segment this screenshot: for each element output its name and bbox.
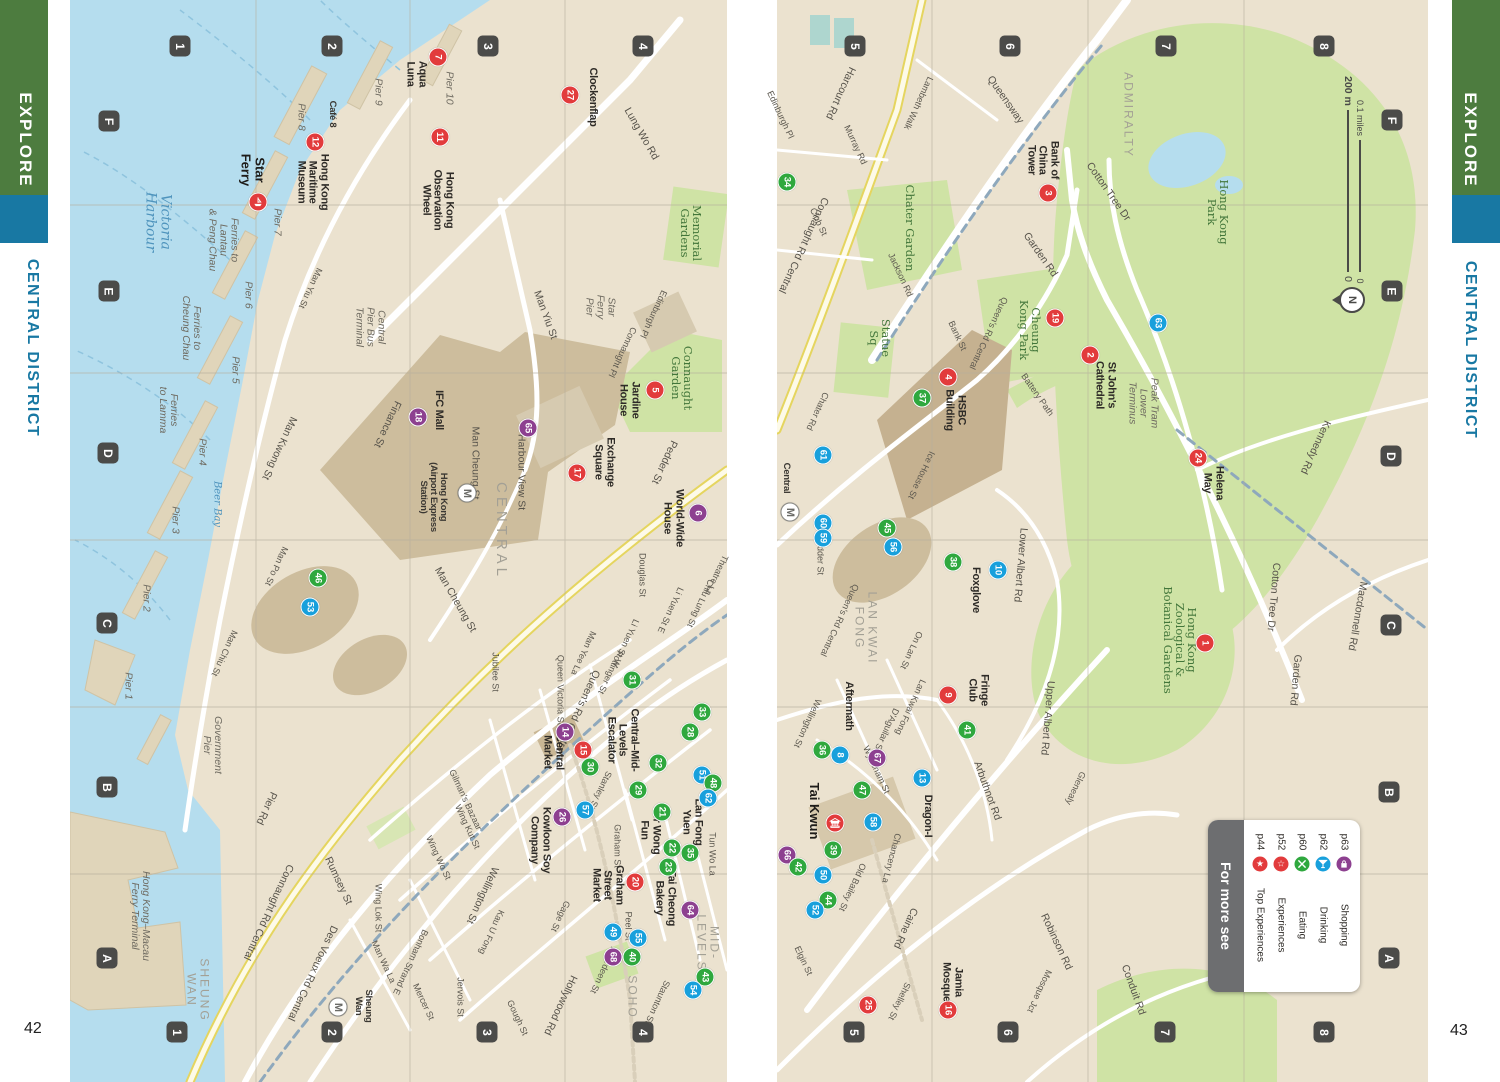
map-label: Ferries to Lantau & Peng Chau xyxy=(206,209,239,271)
scalebar-zero-metric: 0 xyxy=(1342,276,1354,282)
marker-number: 37 xyxy=(916,393,927,404)
grid-ref-label: F xyxy=(1385,116,1399,123)
poi-marker-33: 33 xyxy=(693,703,712,722)
grid-ref-label: 3 xyxy=(481,43,495,50)
marker-number: 7 xyxy=(432,54,443,59)
marker-number: 49 xyxy=(607,927,618,938)
map-label: Wing Lok St xyxy=(373,884,382,933)
map-label: Arbuthnot Rd xyxy=(971,760,1003,822)
map-label: Man Kwong St xyxy=(260,415,299,482)
map-label: Central Pier Bus Terminal xyxy=(353,307,386,347)
marker-number: 56 xyxy=(887,542,898,553)
map-label: MID- LEVELS xyxy=(695,914,720,971)
map-label: Central–Mid- Levels Escalator xyxy=(605,708,640,771)
legend-item-eating: p60Eating xyxy=(1292,820,1312,992)
map-label: Harcourt Rd xyxy=(823,65,857,121)
poi-marker-46: 46 xyxy=(309,569,328,588)
map-label: Queen's Rd Central xyxy=(818,582,860,657)
map-label: Sheung Wan xyxy=(353,989,373,1022)
map-label: Memorial Gardens xyxy=(679,205,703,261)
marker-number: 1 xyxy=(1199,640,1210,645)
marker-number: 65 xyxy=(522,423,533,434)
map-label: Pottinger St xyxy=(596,649,624,696)
marker-number: 11 xyxy=(434,132,445,142)
star-filled-icon: ★ xyxy=(1253,857,1268,872)
map-label: Bank St xyxy=(946,320,968,353)
marker-number: 33 xyxy=(696,707,707,718)
scalebar-imperial xyxy=(1359,140,1361,272)
map-label: Jubilee St xyxy=(490,652,499,692)
poi-marker-30: 30 xyxy=(581,758,600,777)
grid-ref-B: B xyxy=(1379,782,1400,803)
grid-ref-label: 2 xyxy=(325,1029,339,1036)
poi-marker-37: 37 xyxy=(913,389,932,408)
grid-ref-2: 2 xyxy=(322,36,343,57)
north-compass: N xyxy=(1339,287,1365,313)
legend-label: Shopping xyxy=(1339,904,1350,946)
poi-marker-21: 21 xyxy=(653,803,672,822)
marker-number: 39 xyxy=(827,845,838,856)
grid-ref-C: C xyxy=(97,613,118,634)
poi-marker-52: 52 xyxy=(806,901,825,920)
grid-ref-label: 5 xyxy=(848,43,862,50)
marker-number: 5 xyxy=(649,387,660,392)
map-label: Old Bailey St xyxy=(837,861,868,912)
grid-ref-A: A xyxy=(97,948,118,969)
map-label: Hong Kong Observation Wheel xyxy=(420,170,455,231)
north-arrow-icon xyxy=(1332,295,1340,305)
marker-number: M xyxy=(332,1002,344,1011)
poi-marker-24: 24 xyxy=(1189,449,1208,468)
map-label: Lung Wo Rd xyxy=(622,106,661,162)
marker-number: 43 xyxy=(699,972,710,983)
map-label: Gilman's Bazaar xyxy=(447,768,483,832)
map-label: Douglas St xyxy=(637,553,646,597)
museum-marker xyxy=(826,814,845,833)
map-label: Aftermath xyxy=(842,681,854,730)
map-label: Conduit Rd xyxy=(1119,963,1147,1016)
marker-number: 9 xyxy=(942,692,953,697)
marker-number: 53 xyxy=(304,602,315,613)
legend-title: For more see xyxy=(1218,862,1234,950)
map-label: Mercer St xyxy=(410,982,435,1021)
marker-number: 62 xyxy=(702,793,713,804)
map-label: Tun Wo La xyxy=(707,832,716,876)
marker-number: 25 xyxy=(862,1000,873,1011)
grid-ref-1: 1 xyxy=(167,1022,188,1043)
map-label: Shelley St xyxy=(886,981,912,1022)
poi-marker-39: 39 xyxy=(824,841,843,860)
map-label: Hong Kong Park xyxy=(1206,179,1230,244)
map-label: Ferries to Cheung Chau xyxy=(180,296,202,361)
map-label: Beer Bay xyxy=(211,481,222,527)
map-label: Jervois St xyxy=(455,977,464,1017)
legend-items: p44★Top Experiencesp52☆Experiencesp60Eat… xyxy=(1244,820,1360,992)
poi-marker-32: 32 xyxy=(649,754,668,773)
legend-label: Top Experiences xyxy=(1255,888,1266,962)
grid-ref-E: E xyxy=(1382,281,1403,302)
marker-number: 64 xyxy=(684,905,695,916)
poi-marker-9: 9 xyxy=(939,686,958,705)
grid-ref-A: A xyxy=(1379,948,1400,969)
marker-number: 14 xyxy=(559,727,570,738)
grid-ref-label: 6 xyxy=(1001,1029,1015,1036)
map-label: Battery Path xyxy=(1019,372,1055,418)
map-label: Government Pier xyxy=(201,716,223,774)
marker-number: 28 xyxy=(684,727,695,738)
map-label: D'Aguilar St xyxy=(872,707,901,754)
map-label: Cotton Tree Dr xyxy=(1265,562,1282,632)
grid-ref-5: 5 xyxy=(845,36,866,57)
poi-marker-53: 53 xyxy=(301,598,320,617)
map-label: Bank of China Tower xyxy=(1025,141,1060,179)
map-label: Macdonnell Rd xyxy=(1345,581,1368,652)
poi-marker-13: 13 xyxy=(913,769,932,788)
map-label: Kau U Fong xyxy=(477,908,506,956)
map-label: Connaught Pl xyxy=(606,325,638,378)
grid-ref-label: D xyxy=(101,449,115,458)
marker-number: 27 xyxy=(564,90,575,101)
map-label: Pier 7 xyxy=(271,208,282,235)
map-label: Chater Garden xyxy=(904,185,916,272)
marker-number: 55 xyxy=(632,933,643,944)
map-label: Li Yuen St E xyxy=(655,586,684,635)
map-label: Queen's Rd Central xyxy=(967,295,1009,370)
grid-ref-label: 3 xyxy=(480,1029,494,1036)
map-label: Murray Rd xyxy=(842,124,868,166)
marker-number: 42 xyxy=(792,862,803,873)
map-label: Chancery La xyxy=(880,832,902,884)
poi-marker-38: 38 xyxy=(944,553,963,572)
map-label: On Lan St xyxy=(898,630,924,671)
marker-number: 23 xyxy=(662,862,673,873)
poi-marker-47: 47 xyxy=(853,781,872,800)
marker-number: 40 xyxy=(626,952,637,963)
grid-ref-label: B xyxy=(100,783,114,792)
marker-number: 22 xyxy=(666,843,677,854)
map-label: Victoria Harbour xyxy=(143,192,172,252)
marker-number: 2 xyxy=(1084,352,1095,357)
map-label: Dragon-I xyxy=(921,795,933,838)
map-label: Rumsey St xyxy=(322,855,354,906)
marker-number: 17 xyxy=(571,468,582,479)
grid-ref-label: 1 xyxy=(173,43,187,50)
poi-marker-26: 26 xyxy=(553,808,572,827)
poi-marker-36: 36 xyxy=(813,741,832,760)
map-label: Star Ferry Pier xyxy=(583,295,616,320)
grid-ref-label: C xyxy=(100,619,114,628)
poi-marker-56: 56 xyxy=(884,538,903,557)
grid-ref-label: 2 xyxy=(325,43,339,50)
ferry-marker xyxy=(249,193,268,212)
poi-marker-65: 65 xyxy=(519,419,538,438)
poi-marker-14: 14 xyxy=(556,723,575,742)
map-label: Lan Kwai Fong xyxy=(893,678,927,736)
star-outline-icon: ☆ xyxy=(1274,857,1289,872)
map-label: Hong Kong–Macau Ferry Terminal xyxy=(129,871,151,961)
map-label: Wellington St xyxy=(464,865,500,926)
grid-ref-E: E xyxy=(99,281,120,302)
map-label: Connaught Garden xyxy=(670,346,694,410)
marker-number: 36 xyxy=(816,745,827,756)
map-label: Cotton Tree Dr xyxy=(1084,161,1133,224)
map-label: Pier 3 xyxy=(169,506,180,533)
map-label: Queensway xyxy=(985,74,1026,126)
marker-number: 38 xyxy=(947,557,958,568)
map-label: Man Chiu St xyxy=(209,629,238,678)
marker-number: 46 xyxy=(312,573,323,584)
legend-item-experiences: p52☆Experiences xyxy=(1271,820,1291,992)
grid-ref-7: 7 xyxy=(1155,1022,1176,1043)
marker-number: 30 xyxy=(584,762,595,773)
grid-ref-8: 8 xyxy=(1314,36,1335,57)
map-label: Man Yiu St xyxy=(531,289,559,340)
map-label: Bonham Strand E xyxy=(391,928,430,996)
scalebar-zero-imperial: 0 xyxy=(1355,278,1365,283)
map-label: Pier 4 xyxy=(196,438,207,465)
map-label: Jamia Mosque xyxy=(940,962,963,1002)
legend-label: Drinking xyxy=(1318,907,1329,944)
mtr-marker: M xyxy=(329,998,348,1017)
grid-ref-B: B xyxy=(97,777,118,798)
legend-page-ref: p62 xyxy=(1318,834,1329,851)
marker-number: 32 xyxy=(652,758,663,769)
poi-marker-28: 28 xyxy=(681,723,700,742)
map-label: Connaught Rd Central xyxy=(241,862,295,961)
poi-marker-22: 22 xyxy=(663,839,682,858)
marker-number: 6 xyxy=(692,510,703,515)
map-label: Club St xyxy=(807,207,828,238)
grid-ref-label: 4 xyxy=(636,1029,650,1036)
map-label: Li Yuen St W xyxy=(610,617,640,668)
grid-ref-6: 6 xyxy=(998,1022,1019,1043)
grid-ref-3: 3 xyxy=(478,36,499,57)
poi-marker-58: 58 xyxy=(864,813,883,832)
marker-number: 26 xyxy=(556,812,567,823)
legend-header: For more see xyxy=(1208,820,1244,992)
marker-number: 19 xyxy=(1049,313,1060,324)
grid-ref-label: B xyxy=(1382,788,1396,797)
map-label: Jackson Rd xyxy=(886,252,914,299)
poi-marker-17: 17 xyxy=(568,464,587,483)
map-label: Jardine House xyxy=(617,381,640,418)
map-label: Foxglove xyxy=(969,567,981,613)
grid-ref-4: 4 xyxy=(633,36,654,57)
grid-ref-label: 8 xyxy=(1317,43,1331,50)
grid-ref-2: 2 xyxy=(322,1022,343,1043)
poi-marker-62: 62 xyxy=(699,789,718,808)
poi-marker-54: 54 xyxy=(684,981,703,1000)
marker-number: 15 xyxy=(577,745,588,756)
poi-marker-50: 50 xyxy=(814,866,833,885)
marker-number: 10 xyxy=(992,565,1003,576)
map-label: Finance St xyxy=(371,399,402,449)
map-label: Pedder St xyxy=(649,439,679,486)
map-label: Man Wa La xyxy=(369,939,397,984)
north-label: N xyxy=(1346,296,1358,304)
grid-ref-label: 7 xyxy=(1158,1029,1172,1036)
marker-number: 63 xyxy=(1152,318,1163,329)
map-label: Cheung Kong Park xyxy=(1018,300,1042,360)
marker-number: 20 xyxy=(629,877,640,888)
poi-marker-63: 63 xyxy=(1149,314,1168,333)
map-label: Clockenflap xyxy=(586,67,598,126)
grid-ref-label: A xyxy=(100,954,114,963)
map-label: Caine Rd xyxy=(891,906,919,950)
marker-number: 13 xyxy=(916,773,927,784)
marker-number: 50 xyxy=(817,870,828,881)
poi-marker-25: 25 xyxy=(859,996,878,1015)
for-more-see-legend: For more see p44★Top Experiencesp52☆Expe… xyxy=(1208,820,1360,992)
map-label: Statue Sq xyxy=(868,319,892,357)
map-label: Hong Kong (Airport Express Station) xyxy=(418,462,448,532)
marker-number: 16 xyxy=(942,1005,953,1016)
map-label: Glenealy xyxy=(1063,770,1087,806)
map-label: SHEUNG WAN xyxy=(185,958,210,1021)
poi-marker-61: 61 xyxy=(814,446,833,465)
poi-marker-5: 5 xyxy=(646,381,665,400)
map-label: Robinson Rd xyxy=(1038,912,1074,972)
map-label: Lambeth Walk xyxy=(902,75,935,131)
grid-ref-label: A xyxy=(1382,954,1396,963)
map-label: Tai Kwun xyxy=(807,783,821,840)
map-label: Connaught Rd Central xyxy=(776,195,830,294)
map-label: Aqua Luna xyxy=(404,61,427,87)
poi-marker-12: 12 xyxy=(306,133,325,152)
grid-ref-7: 7 xyxy=(1156,36,1177,57)
poi-marker-49: 49 xyxy=(604,923,623,942)
legend-item-drinking: p62Drinking xyxy=(1313,820,1333,992)
poi-marker-2: 2 xyxy=(1081,346,1100,365)
map-label: Tai Cheong Bakery xyxy=(653,870,676,926)
marker-number: 67 xyxy=(871,753,882,764)
poi-marker-4: 4 xyxy=(939,368,958,387)
map-label: Ferries to Lamma xyxy=(157,387,179,434)
bag-icon xyxy=(1337,857,1352,872)
mtr-marker: M xyxy=(781,503,800,522)
map-label: Star Ferry xyxy=(239,154,266,187)
marker-number: 48 xyxy=(707,778,718,789)
map-label: Edinburgh Pl xyxy=(638,289,668,340)
scalebar-metric xyxy=(1347,110,1349,272)
grid-ref-C: C xyxy=(1381,615,1402,636)
marker-number: 29 xyxy=(632,785,643,796)
poi-marker-67: 67 xyxy=(868,749,887,768)
marker-number: 59 xyxy=(817,533,828,544)
marker-number: M xyxy=(784,507,796,516)
marker-number: 3 xyxy=(1042,190,1053,195)
map-label: Kowloon Soy Company xyxy=(528,807,551,873)
marker-number: 4 xyxy=(942,374,953,379)
legend-label: Experiences xyxy=(1276,897,1287,952)
marker-number: 66 xyxy=(781,850,792,861)
map-label: Queen Victoria St xyxy=(555,655,564,725)
poi-marker-59: 59 xyxy=(814,529,833,548)
grid-ref-4: 4 xyxy=(633,1022,654,1043)
marker-number: M xyxy=(461,488,473,497)
grid-ref-label: C xyxy=(1384,621,1398,630)
map-label: HSBC Building xyxy=(943,389,966,431)
map-label: Staunton St xyxy=(643,979,671,1026)
map-label: IFC Mall xyxy=(432,390,444,430)
map-label: Helena May xyxy=(1201,466,1224,500)
map-label: Hollywood Rd xyxy=(541,973,578,1036)
poi-marker-18: 18 xyxy=(409,408,428,427)
marker-number: 34 xyxy=(781,177,792,188)
map-label: Lan Fong Yuen xyxy=(680,798,703,845)
map-label: Harbour View St xyxy=(515,434,526,510)
map-label: SOHO xyxy=(626,975,639,1018)
grid-ref-1: 1 xyxy=(170,36,191,57)
marker-number: 57 xyxy=(579,805,590,816)
marker-number: 44 xyxy=(822,895,833,906)
map-label: Man Po St xyxy=(263,545,289,587)
map-label: Kennedy Rd xyxy=(1298,418,1332,475)
poi-marker-34: 34 xyxy=(778,173,797,192)
poi-marker-31: 31 xyxy=(623,671,642,690)
map-label: Elgin St xyxy=(792,945,814,977)
drink-icon xyxy=(1316,857,1331,872)
grid-ref-5: 5 xyxy=(844,1022,865,1043)
map-label: Graham St xyxy=(612,824,621,868)
marker-number: 41 xyxy=(961,725,972,736)
map-label: Peak Tram Lower Terminus xyxy=(1126,378,1159,429)
marker-number: 60 xyxy=(817,518,828,529)
grid-ref-label: 4 xyxy=(636,43,650,50)
map-label: Mosque Jct xyxy=(1025,968,1053,1014)
marker-number: 31 xyxy=(626,675,637,686)
poi-marker-3: 3 xyxy=(1039,184,1058,203)
marker-number: 45 xyxy=(881,523,892,534)
marker-number: 61 xyxy=(817,450,828,461)
map-label: Lower Albert Rd xyxy=(1011,527,1028,602)
map-label: Pier Rd xyxy=(254,790,279,826)
map-label: Ice House St xyxy=(906,450,936,501)
map-label: Pier 9 xyxy=(372,78,383,105)
grid-ref-label: 5 xyxy=(847,1029,861,1036)
poi-marker-19: 19 xyxy=(1046,309,1065,328)
poi-marker-6: 6 xyxy=(689,504,708,523)
grid-ref-label: 1 xyxy=(170,1029,184,1036)
map-label: Pier 2 xyxy=(140,584,151,611)
map-label: St John's Cathedral xyxy=(1093,361,1116,409)
grid-ref-label: 8 xyxy=(1317,1029,1331,1036)
mtr-marker: M xyxy=(458,484,477,503)
map-label: Edinburgh Pl xyxy=(765,90,795,141)
marker-number: 24 xyxy=(1192,453,1203,464)
map-label: Man Yiu St xyxy=(297,266,324,309)
poi-marker-1: 1 xyxy=(1196,634,1215,653)
scalebar-metric-label: 200 m xyxy=(1342,76,1354,106)
poi-marker-27: 27 xyxy=(561,86,580,105)
grid-ref-6: 6 xyxy=(1000,36,1021,57)
map-label: Exchange Square xyxy=(592,437,615,487)
map-label: Pier 1 xyxy=(122,672,133,699)
map-label: Chiu Lung St xyxy=(685,577,716,628)
marker-number: 18 xyxy=(412,412,423,423)
map-label: Upper Albert Rd xyxy=(1038,680,1055,755)
legend-item-shopping: p63Shopping xyxy=(1334,820,1354,992)
grid-ref-F: F xyxy=(99,111,120,132)
poi-marker-23: 23 xyxy=(659,858,678,877)
poi-marker-11: 11 xyxy=(431,128,450,147)
poi-marker-41: 41 xyxy=(958,721,977,740)
map-label: Graham Street Market xyxy=(590,865,625,905)
grid-ref-D: D xyxy=(1381,446,1402,467)
marker-number: 12 xyxy=(309,137,320,148)
poi-marker-57: 57 xyxy=(576,801,595,820)
poi-marker-7: 7 xyxy=(429,48,448,67)
